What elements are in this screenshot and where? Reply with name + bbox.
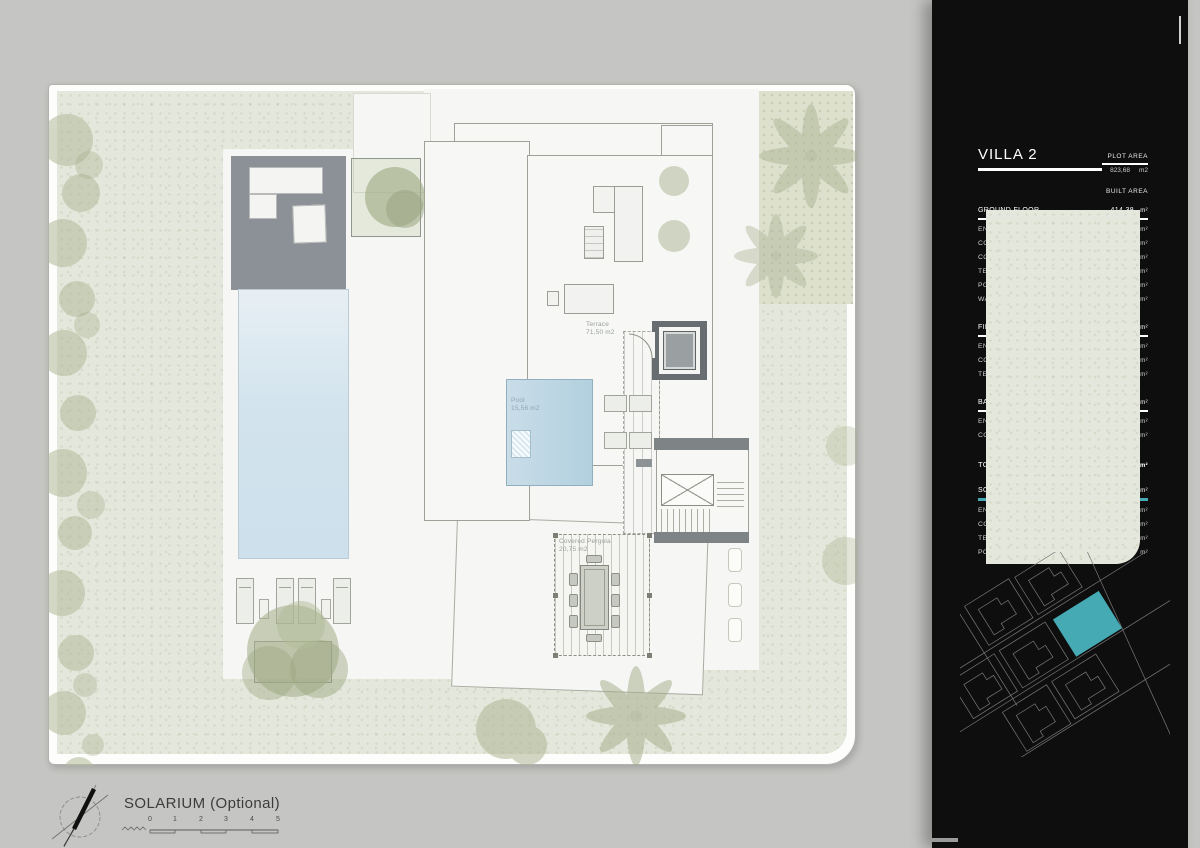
built-area-label: BUILT AREA [1106,188,1148,195]
building-top-step [661,125,713,157]
plot-area-value: 823,68m2 [1110,167,1148,174]
scrollbar-indicator[interactable] [1179,16,1181,44]
stair-wall-top [654,438,749,450]
dining-chair [569,594,578,607]
terrace-label: Terrace 71,50 m2 [586,321,615,337]
plot-area-underline [1102,163,1148,165]
pergola-post [553,593,558,598]
stepping-stone [728,583,742,607]
scale-tick: 1 [170,816,180,823]
pergola-post [647,533,652,538]
pergola-label: Covered Pergola 20,75 m2 [559,538,611,554]
dining-chair [586,555,602,563]
info-panel: VILLA 2 PLOT AREA 823,68m2 BUILT AREA GR… [932,0,1188,848]
scale-tick: 0 [145,816,155,823]
side-table [259,599,269,619]
pergola-post [647,653,652,658]
pool-label: Pool 15,56 m2 [511,397,540,413]
stair-treads-right [717,477,744,507]
scale-tick: 3 [221,816,231,823]
deck-table [292,204,326,243]
sun-lounger [604,432,627,449]
tree-planter-bottom [254,641,332,683]
dining-chair [611,573,620,586]
title-block: VILLA 2 PLOT AREA 823,68m2 BUILT AREA [978,146,1148,202]
panel-corner-notch [932,838,958,842]
pergola-post [647,593,652,598]
elevator-cab [663,331,696,370]
dining-chair [611,594,620,607]
pergola-post [553,533,558,538]
totals-block: TOTAL 774,08 m² GARDEN 409,3 m² [978,457,1148,474]
solarium-pool [506,379,593,486]
scale-bar: 0 1 2 3 4 5 [120,816,300,840]
title-underline [978,168,1102,171]
dining-table [580,565,609,630]
stool [547,291,559,306]
stair-void [661,474,714,506]
sun-lounger [298,578,316,624]
elevator-door-opening [649,332,655,358]
site-plan-sheet: Terrace 71,50 m2 Pool 15,56 m2 Covered P… [48,84,856,765]
stair-treads-bottom [661,509,711,532]
dining-chair [586,634,602,642]
sun-lounger [276,578,294,624]
page: { "colors": { "accent": "#45aab4", "pane… [0,0,1200,848]
stepping-stone [728,548,742,572]
pergola-post [553,653,558,658]
sun-lounger [333,578,351,624]
villa-title: VILLA 2 [978,146,1038,163]
scale-tick: 5 [273,816,283,823]
dining-chair [611,615,620,628]
sun-lounger [236,578,254,624]
stair-wall-bottom [654,532,749,543]
drawing-title: SOLARIUM (Optional) [124,795,280,812]
roof-deck [231,156,346,290]
dining-chair [569,615,578,628]
solarium-sofa-small [564,284,614,314]
coffee-table [584,226,604,259]
garden-row: GARDEN 409,3 m² [986,210,1140,564]
dining-chair [569,573,578,586]
sun-lounger [604,395,627,412]
deck-sofa [249,167,323,194]
area-table: GROUND FLOOR 414,38 m² ENCLOSED AREA113,… [978,204,1148,574]
scale-tick: 4 [247,816,257,823]
stepping-stone [728,618,742,642]
deck-sofa-corner [249,194,277,219]
main-pool [238,289,349,559]
pool-steps [511,430,531,458]
plot-area-label: PLOT AREA [1107,153,1148,160]
scale-tick: 2 [196,816,206,823]
highlighted-plot-villa2[interactable] [1053,591,1122,657]
sun-lounger [629,395,652,412]
tree-planter-top [351,158,421,237]
site-location-map [960,552,1170,757]
side-table [321,599,331,619]
stair-landing-marker [636,459,652,467]
compass-icon [42,780,122,848]
solarium-sofa-side [614,186,643,262]
sun-lounger [629,432,652,449]
